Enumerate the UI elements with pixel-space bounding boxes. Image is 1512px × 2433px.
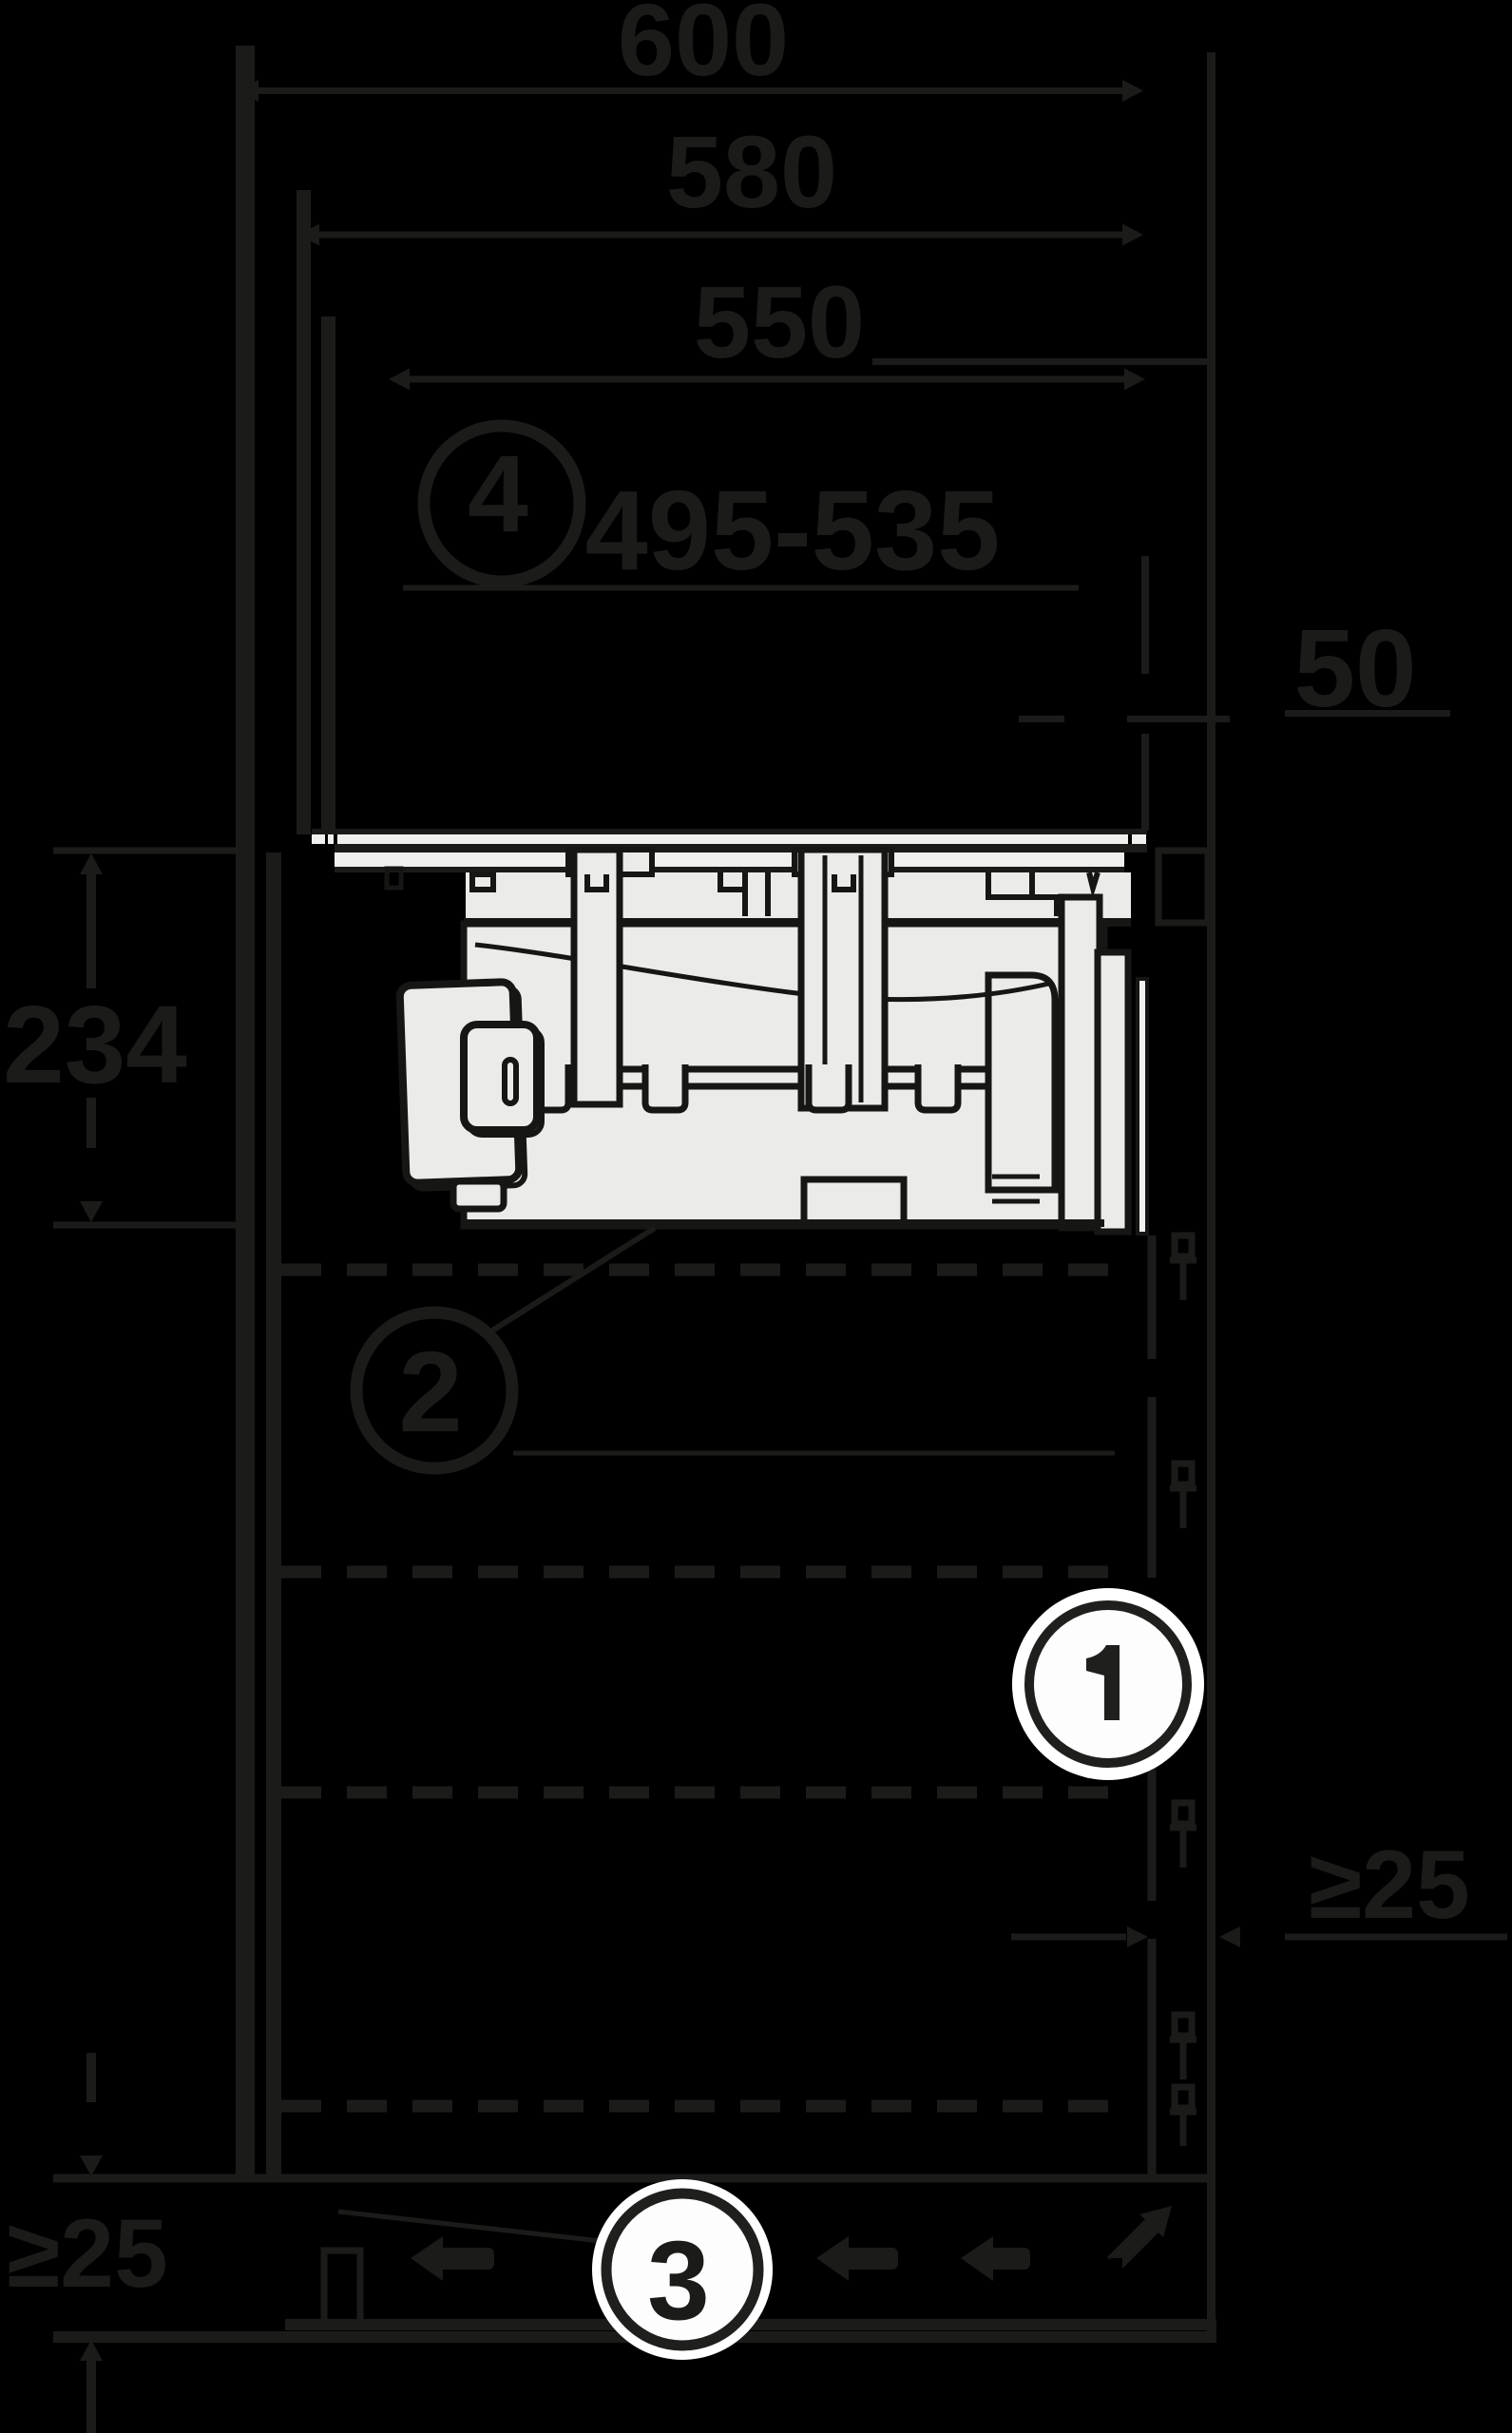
svg-text:≥25: ≥25 xyxy=(1309,1830,1469,1939)
svg-text:3: 3 xyxy=(647,2218,710,2344)
svg-text:600: 600 xyxy=(618,0,789,97)
svg-text:580: 580 xyxy=(666,114,837,229)
svg-text:234: 234 xyxy=(3,983,187,1106)
svg-text:550: 550 xyxy=(694,264,865,379)
svg-text:2: 2 xyxy=(398,1327,462,1456)
svg-text:4: 4 xyxy=(468,433,528,555)
svg-text:≥25: ≥25 xyxy=(7,2199,167,2308)
svg-text:495-535: 495-535 xyxy=(585,468,1001,594)
